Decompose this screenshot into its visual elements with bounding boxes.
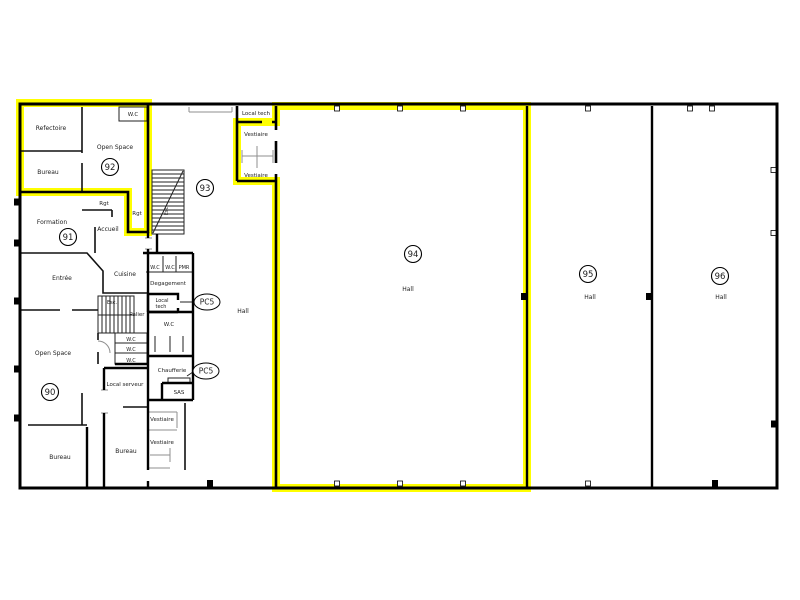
room-number: 95 xyxy=(583,270,594,280)
room-label: Rgt xyxy=(132,211,142,217)
room-label: Cuisine xyxy=(114,271,136,278)
room-label: Refectoire xyxy=(36,125,67,132)
room-label: Vestiaire xyxy=(244,173,268,179)
room-label: Bureau xyxy=(115,448,137,455)
column-tick xyxy=(335,481,340,486)
column-tick xyxy=(14,199,20,206)
room-labels: W.CRefectoireOpen SpaceBureauRgtRgtAccue… xyxy=(35,111,727,461)
room-label: Rgt xyxy=(99,201,109,207)
room-number: 93 xyxy=(200,184,211,194)
column-tick xyxy=(688,106,693,111)
room-label: Palier xyxy=(129,312,145,318)
column-tick xyxy=(14,240,20,247)
column-tick xyxy=(207,480,213,487)
room-label: W.C xyxy=(126,347,136,353)
room-number: 94 xyxy=(408,250,419,260)
room-label: W.C xyxy=(150,265,160,271)
column-tick xyxy=(398,106,403,111)
room-label: SAS xyxy=(174,390,185,396)
room-label: Hall xyxy=(237,308,249,315)
room-label: Degagement xyxy=(150,281,187,287)
room-label: W.C xyxy=(126,358,136,364)
column-tick xyxy=(335,106,340,111)
room-label: Hall xyxy=(584,294,596,301)
room-label: Local tech xyxy=(242,111,271,117)
room-label: PMR xyxy=(179,265,190,271)
room-label: Formation xyxy=(37,219,67,226)
room-label: Vestiaire xyxy=(150,440,174,446)
room-label: Esc. xyxy=(107,300,118,306)
room-label: Chaufferie xyxy=(158,368,187,374)
room-number: 91 xyxy=(63,233,74,243)
room-label: Hall xyxy=(402,286,414,293)
column-tick xyxy=(586,106,591,111)
room-label: Accueil xyxy=(97,226,119,233)
room-label: Open Space xyxy=(35,350,72,357)
highlight-zone-94[interactable] xyxy=(237,106,527,488)
room-number: 96 xyxy=(715,272,726,282)
column-tick xyxy=(771,231,776,236)
column-tick xyxy=(398,481,403,486)
pc5-tags: PC5PC5 xyxy=(193,294,220,379)
column-tick xyxy=(712,480,718,487)
room-label: tech xyxy=(156,304,167,310)
room-label: Vestiaire xyxy=(150,417,174,423)
column-tick xyxy=(461,481,466,486)
room-label: Local serveur xyxy=(107,382,145,388)
room-label: Bureau xyxy=(37,169,59,176)
column-tick xyxy=(646,293,652,300)
column-tick xyxy=(521,293,527,300)
column-tick xyxy=(771,421,777,428)
column-tick xyxy=(586,481,591,486)
column-tick xyxy=(14,366,20,373)
floor-plan-page: W.CRefectoireOpen SpaceBureauRgtRgtAccue… xyxy=(0,0,800,600)
floor-plan: W.CRefectoireOpen SpaceBureauRgtRgtAccue… xyxy=(0,0,800,600)
column-tick xyxy=(771,168,776,173)
room-label: W.C xyxy=(126,337,136,343)
column-tick xyxy=(461,106,466,111)
room-label: Open Space xyxy=(97,144,134,151)
room-label: W.C xyxy=(128,112,139,118)
room-number: 90 xyxy=(45,388,56,398)
interior-walls xyxy=(20,107,185,470)
room-label: Esc xyxy=(164,206,170,215)
column-tick xyxy=(14,415,20,422)
room-label: Vestiaire xyxy=(244,132,268,138)
column-tick xyxy=(710,106,715,111)
pc5-label: PC5 xyxy=(200,298,215,307)
room-number: 92 xyxy=(105,163,116,173)
room-label: Hall xyxy=(715,294,727,301)
room-label: W.C xyxy=(165,265,175,271)
room-label: Bureau xyxy=(49,454,71,461)
room-label: Entrée xyxy=(52,275,72,282)
pc5-label: PC5 xyxy=(199,367,214,376)
room-label: W.C xyxy=(164,322,175,328)
column-tick xyxy=(14,298,20,305)
